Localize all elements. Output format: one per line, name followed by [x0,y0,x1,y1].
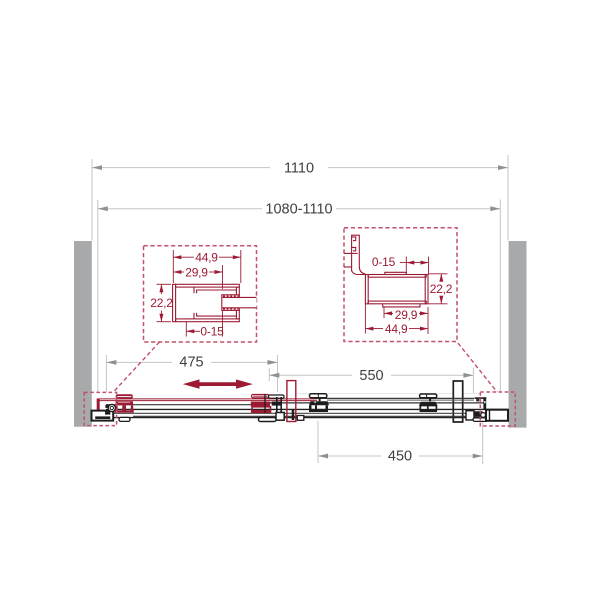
svg-text:475: 475 [179,355,203,371]
svg-text:29,9: 29,9 [395,308,418,322]
svg-text:22,2: 22,2 [430,282,453,296]
svg-text:22,2: 22,2 [150,296,173,310]
svg-text:1080-1110: 1080-1110 [265,201,332,217]
svg-text:44,9: 44,9 [195,251,218,265]
svg-text:1110: 1110 [284,160,314,176]
svg-text:29,9: 29,9 [185,265,208,279]
svg-text:0-15: 0-15 [200,325,224,339]
svg-text:0-15: 0-15 [372,255,396,269]
svg-text:44,9: 44,9 [385,322,408,336]
svg-text:450: 450 [388,449,412,465]
svg-text:550: 550 [359,368,383,384]
